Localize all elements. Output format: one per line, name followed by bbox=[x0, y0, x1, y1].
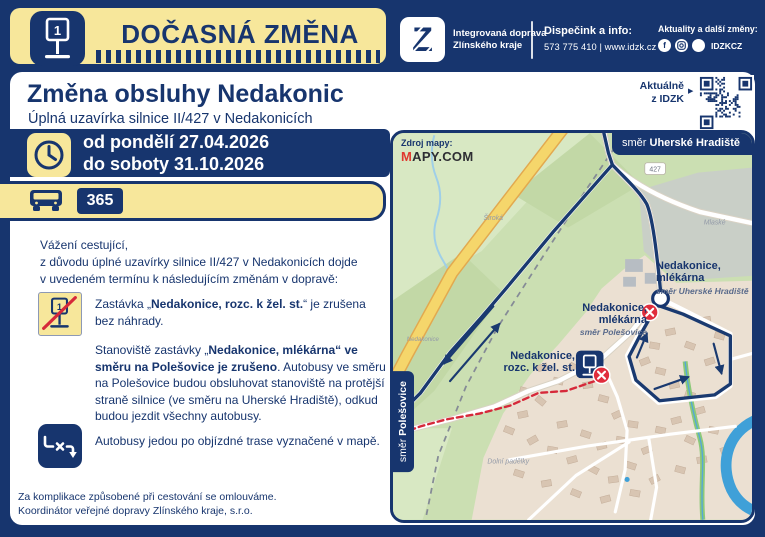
intro-line: Vážení cestující, bbox=[40, 237, 358, 254]
stop-direction-label: směr Uherské Hradiště bbox=[656, 286, 749, 296]
instagram-icon bbox=[675, 39, 688, 52]
footer-text: Za komplikace způsobené při cestování se… bbox=[18, 491, 277, 518]
intro-line: v uvedeném termínu k následujícím změnám… bbox=[40, 271, 358, 288]
validity-to: do soboty 31.10.2026 bbox=[83, 154, 264, 175]
stop-name-line: Nedakonice, bbox=[656, 260, 721, 272]
mapy-com-logo: MAPY.COM bbox=[401, 149, 473, 164]
map-source: Zdroj mapy: MAPY.COM bbox=[401, 138, 473, 164]
bullet-moved-stop: Stanoviště zastávky „Nedakonice, mlékárn… bbox=[95, 342, 393, 425]
badge-prefix: směr bbox=[397, 436, 409, 462]
footer-line-coordinator: Koordinátor veřejné dopravy Zlínského kr… bbox=[18, 505, 277, 519]
banner-stripes-decoration bbox=[96, 50, 380, 63]
stop-name-line: Nedakonice, bbox=[541, 302, 647, 314]
bullet-cancelled-stop: Zastávka „Nedakonice, rozc. k žel. st.“ … bbox=[95, 296, 387, 329]
stop-name-line: mlékárna bbox=[541, 314, 647, 326]
mapy-logo-rest: APY.COM bbox=[412, 149, 473, 164]
header-divider bbox=[531, 21, 533, 59]
stop-label-mlekarna-cancelled: Nedakonice, mlékárna bbox=[541, 302, 647, 326]
bus-icon bbox=[28, 188, 64, 219]
cancelled-stop-icon: 1 bbox=[38, 292, 82, 336]
page-title: Změna obsluhy Nedakonic bbox=[27, 80, 344, 109]
news-block: Aktuality a další změny: f IDZKCZ bbox=[658, 24, 758, 52]
bus-stop-sign-icon: 1 bbox=[30, 11, 85, 66]
dispatch-value: 573 775 410 | www.idzk.cz bbox=[544, 42, 656, 52]
map-source-label: Zdroj mapy: bbox=[401, 138, 473, 148]
dispatch-label: Dispečink a info: bbox=[544, 25, 656, 37]
qr-label-line1: Aktuálně bbox=[598, 80, 684, 93]
svg-text:Nedakonice: Nedakonice bbox=[407, 336, 440, 343]
transit-change-poster: 1 DOČASNÁ ZMĚNA Z Integrovaná doprava Zl… bbox=[0, 0, 765, 537]
detour-map: 427 Široká Mlaské Nedakonice Dolní paděl… bbox=[390, 130, 755, 523]
stop-name-line: mlékárna bbox=[656, 272, 721, 284]
stop-label-mlekarna-served: Nedakonice, mlékárna bbox=[656, 260, 721, 284]
svg-text:427: 427 bbox=[649, 167, 661, 174]
social-handle: IDZKCZ bbox=[711, 41, 742, 51]
stop-label-rozc-cancelled: Nedakonice, rozc. k žel. st. bbox=[483, 350, 575, 374]
intro-text: Vážení cestující, z důvodu úplné uzavírk… bbox=[40, 237, 358, 288]
badge-destination: Uherské Hradiště bbox=[650, 137, 741, 149]
qr-arrow-icon: ▶ bbox=[688, 87, 693, 95]
direction-badge-uherske-hradiste: směr Uherské Hradiště bbox=[612, 133, 752, 155]
svg-text:Mlaské: Mlaské bbox=[704, 220, 726, 227]
road-number-badge: 427 bbox=[645, 163, 666, 175]
qr-code bbox=[698, 75, 754, 131]
news-label: Aktuality a další změny: bbox=[658, 24, 758, 34]
stop-name-line: Nedakonice, bbox=[483, 350, 575, 362]
banner-title: DOČASNÁ ZMĚNA bbox=[104, 19, 376, 50]
direction-badge-polesovice: směr Polešovice bbox=[393, 371, 414, 472]
mapy-logo-m: M bbox=[401, 149, 412, 164]
stop-name-line: rozc. k žel. st. bbox=[483, 362, 575, 374]
svg-text:Široká: Široká bbox=[483, 213, 503, 222]
qr-label-line2: z IDZK bbox=[598, 93, 684, 106]
detour-icon bbox=[38, 424, 82, 468]
intro-line: z důvodu úplné uzavírky silnice II/427 v… bbox=[40, 254, 358, 271]
idzk-logo-icon: Z bbox=[400, 17, 445, 62]
facebook-icon: f bbox=[658, 39, 671, 52]
clock-icon bbox=[27, 133, 71, 177]
qr-label: Aktuálně z IDZK bbox=[598, 80, 684, 105]
badge-destination: Polešovice bbox=[397, 381, 409, 436]
svg-text:Dolní padělky: Dolní padělky bbox=[487, 459, 529, 466]
bullet-detour: Autobusy jedou po objízdné trase vyznače… bbox=[95, 433, 387, 450]
validity-from: od pondělí 27.04.2026 bbox=[83, 132, 269, 153]
page-subtitle: Úplná uzavírka silnice II/427 v Nedakoni… bbox=[28, 111, 313, 127]
social-circle-icon bbox=[692, 39, 705, 52]
line-number-badge: 365 bbox=[77, 188, 123, 214]
stop-direction-label: směr Polešovice bbox=[541, 327, 647, 337]
svg-text:1: 1 bbox=[54, 23, 61, 38]
dispatch-info: Dispečink a info: 573 775 410 | www.idzk… bbox=[544, 25, 656, 52]
footer-line-apology: Za komplikace způsobené při cestování se… bbox=[18, 491, 277, 505]
badge-prefix: směr bbox=[622, 137, 650, 149]
